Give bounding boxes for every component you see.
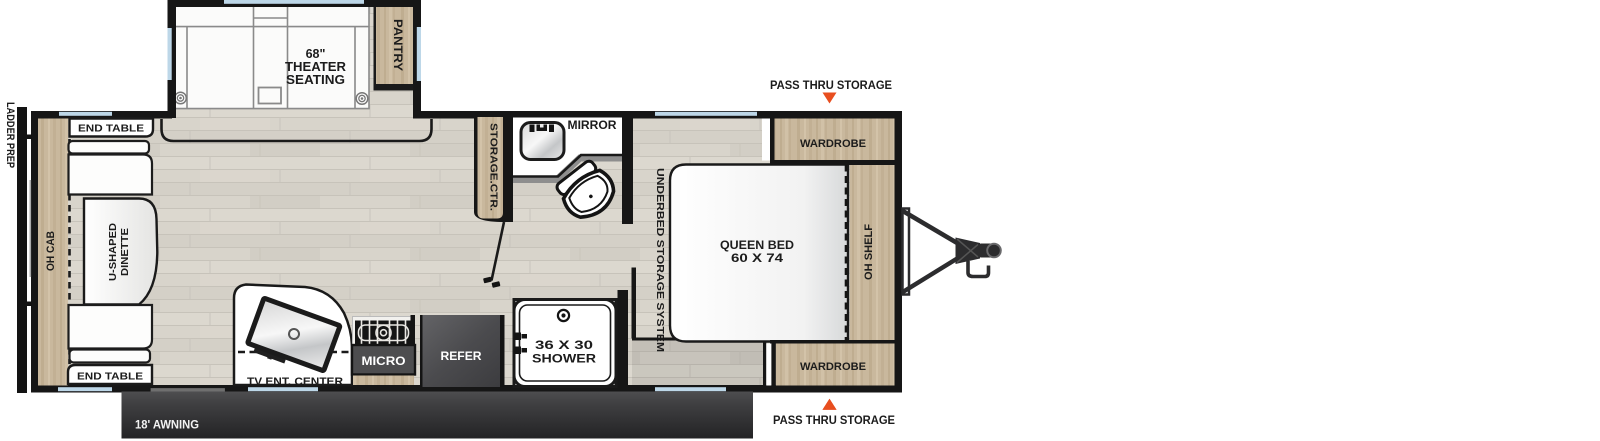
svg-text:U-SHAPED: U-SHAPED [107,223,119,281]
svg-text:REFER: REFER [441,349,482,363]
svg-text:WARDROBE: WARDROBE [800,138,866,150]
svg-text:18' AWNING: 18' AWNING [135,418,199,432]
svg-text:END TABLE: END TABLE [77,371,143,383]
svg-text:MIRROR: MIRROR [568,120,618,132]
svg-text:SEATING: SEATING [286,73,345,87]
svg-text:PANTRY: PANTRY [391,19,403,71]
svg-text:OH CAB: OH CAB [45,231,57,271]
svg-text:PASS THRU STORAGE: PASS THRU STORAGE [770,80,892,92]
svg-text:UNDERBED STORAGE SYSTEM: UNDERBED STORAGE SYSTEM [654,168,665,352]
svg-text:OH SHELF: OH SHELF [863,224,875,280]
svg-text:MICRO: MICRO [362,356,406,368]
svg-text:68": 68" [306,47,326,61]
svg-text:QUEEN BED: QUEEN BED [720,240,794,252]
svg-text:TV ENT. CENTER: TV ENT. CENTER [247,376,343,388]
svg-text:LADDER PREP: LADDER PREP [4,102,16,168]
svg-text:WARDROBE: WARDROBE [800,361,866,373]
svg-text:PASS THRU STORAGE: PASS THRU STORAGE [773,415,895,427]
svg-text:60 X 74: 60 X 74 [731,253,784,265]
svg-text:36 X 30: 36 X 30 [535,338,593,352]
svg-text:END TABLE: END TABLE [78,123,144,135]
svg-text:STORAGE.CTR.: STORAGE.CTR. [488,123,499,211]
svg-text:SHOWER: SHOWER [532,352,596,366]
svg-text:DINETTE: DINETTE [119,228,131,276]
svg-text:THEATER: THEATER [285,60,346,74]
